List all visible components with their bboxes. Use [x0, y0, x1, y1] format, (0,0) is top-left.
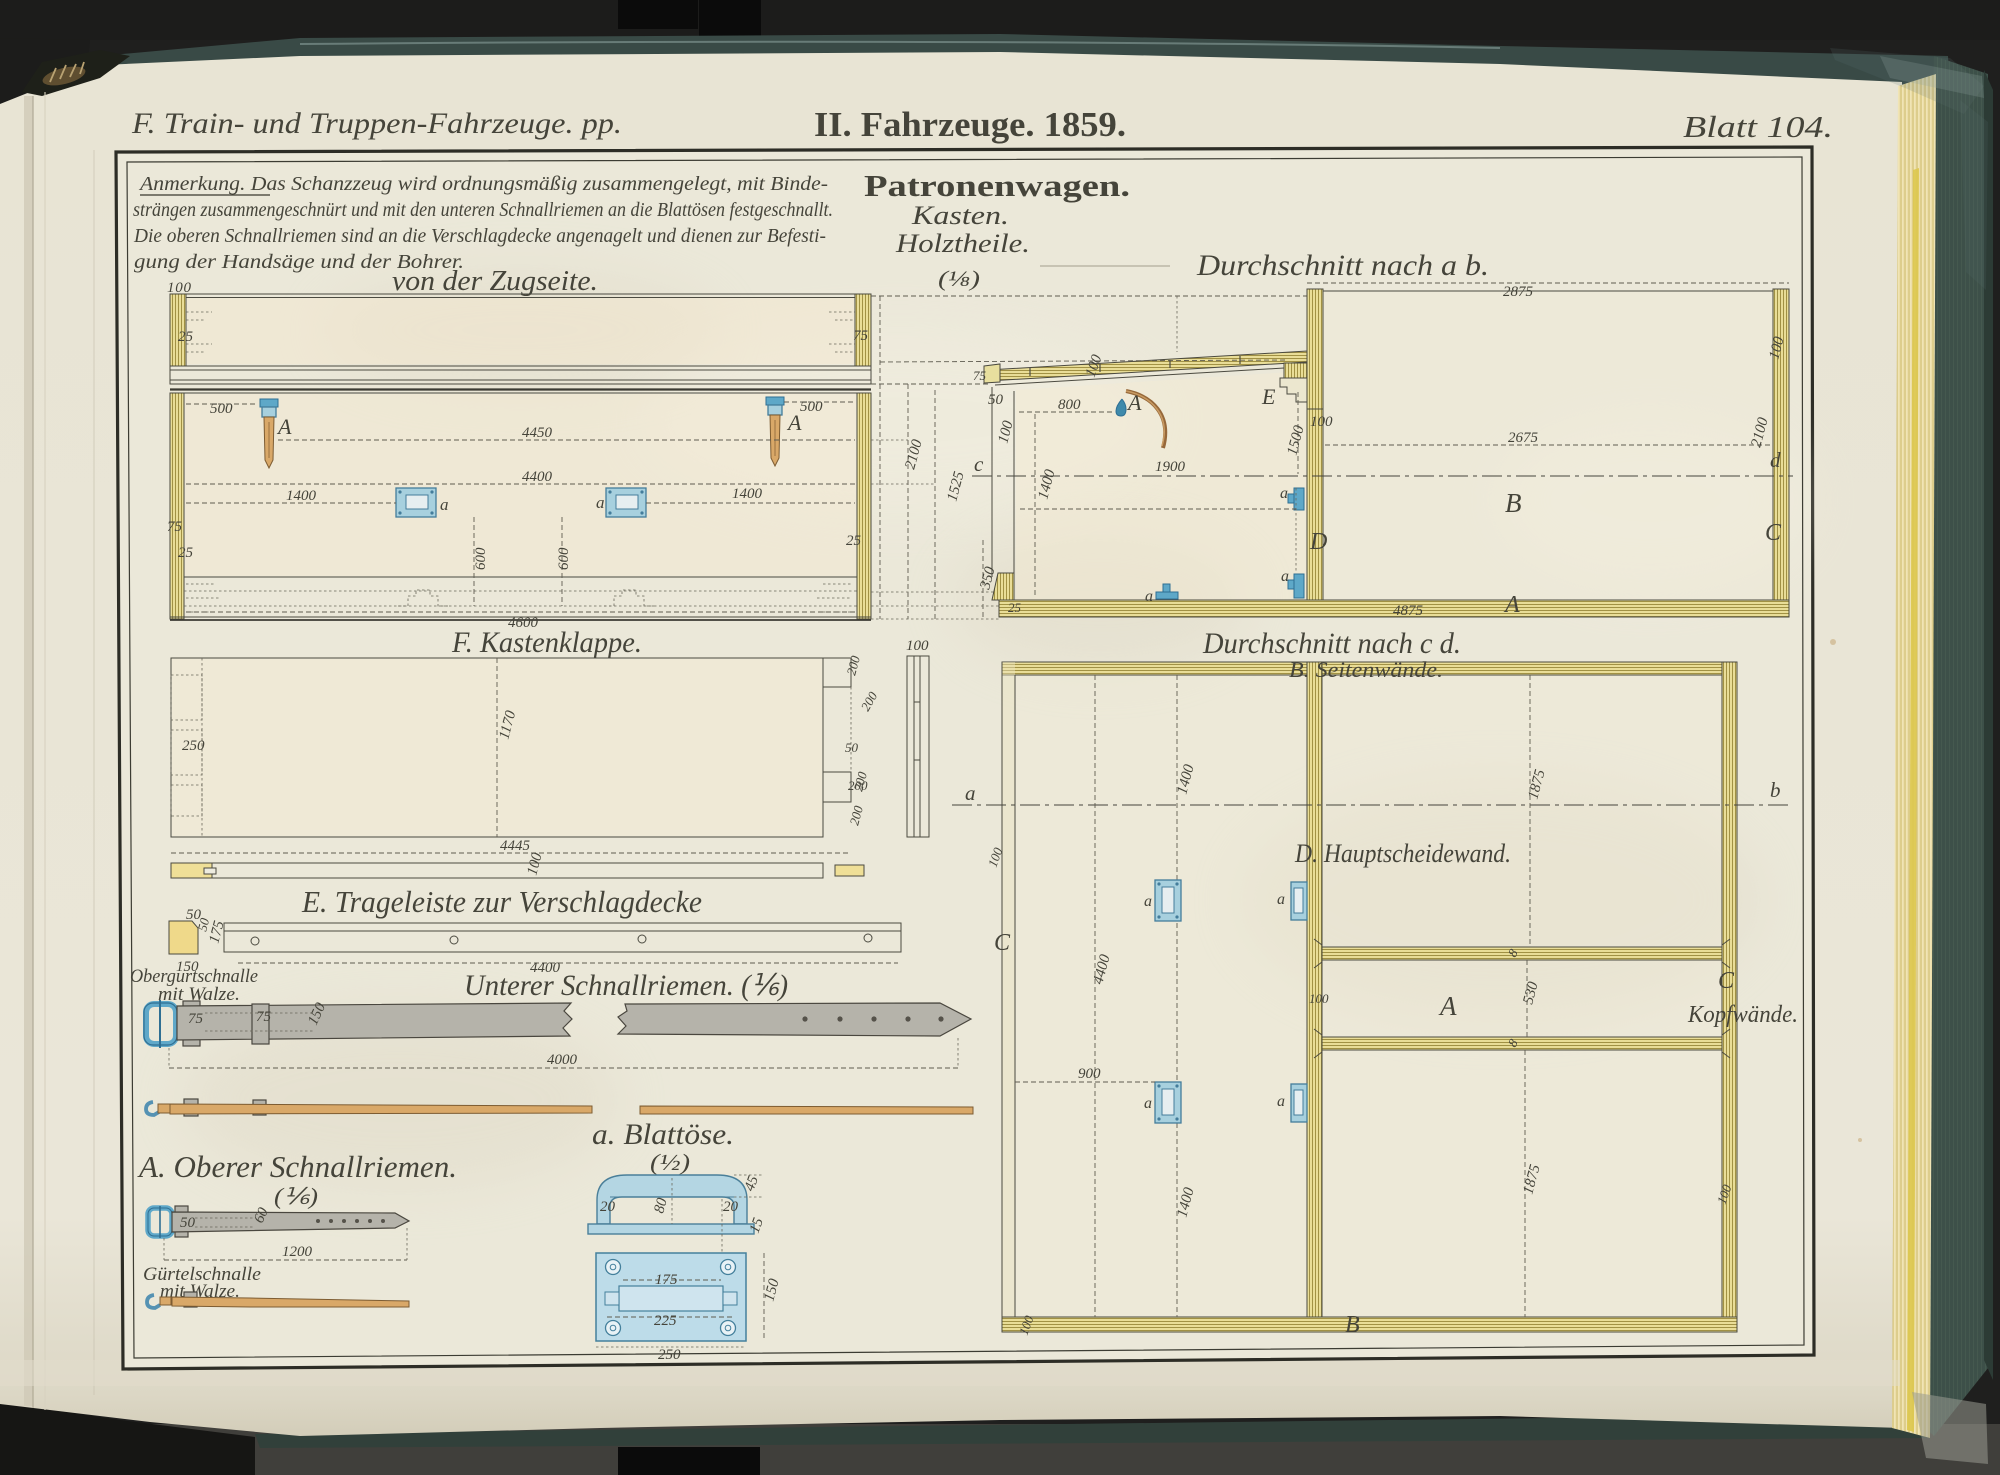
svg-text:20: 20 — [723, 1199, 739, 1215]
svg-text:E: E — [1261, 384, 1276, 409]
svg-text:F. Train- und Truppen-Fahrzeug: F. Train- und Truppen-Fahrzeuge. pp. — [131, 107, 622, 140]
svg-text:a: a — [1144, 893, 1152, 910]
svg-text:a: a — [1144, 1095, 1152, 1112]
svg-text:a: a — [1277, 1093, 1285, 1110]
svg-text:d: d — [1770, 448, 1781, 472]
svg-text:(½): (½) — [650, 1150, 690, 1175]
svg-text:500: 500 — [210, 401, 233, 417]
svg-text:75: 75 — [973, 368, 987, 383]
svg-text:900: 900 — [1078, 1066, 1101, 1082]
svg-text:1400: 1400 — [286, 488, 317, 504]
svg-text:Unterer Schnallriemen. (⅙): Unterer Schnallriemen. (⅙) — [464, 969, 788, 1002]
svg-text:600: 600 — [556, 547, 572, 570]
svg-text:20: 20 — [600, 1199, 616, 1215]
svg-text:1400: 1400 — [732, 486, 763, 502]
svg-text:4450: 4450 — [522, 425, 553, 441]
svg-text:25: 25 — [846, 533, 862, 549]
svg-text:50: 50 — [988, 392, 1004, 408]
svg-text:50: 50 — [845, 740, 859, 755]
svg-text:a. Blattöse.: a. Blattöse. — [592, 1118, 734, 1151]
svg-text:Durchschnitt nach c d.: Durchschnitt nach c d. — [1202, 627, 1461, 660]
svg-text:B. Seitenwände.: B. Seitenwände. — [1289, 657, 1443, 682]
svg-text:Patronenwagen.: Patronenwagen. — [864, 168, 1130, 203]
svg-text:D. Hauptscheidewand.: D. Hauptscheidewand. — [1294, 839, 1511, 868]
svg-text:50: 50 — [180, 1215, 196, 1231]
svg-text:25: 25 — [178, 545, 194, 561]
svg-text:100: 100 — [167, 280, 192, 296]
svg-text:225: 225 — [654, 1313, 677, 1329]
svg-text:a: a — [596, 493, 605, 512]
svg-text:C: C — [1718, 968, 1735, 994]
svg-text:800: 800 — [1058, 397, 1081, 413]
svg-text:Blatt 104.: Blatt 104. — [1683, 109, 1833, 144]
svg-text:Durchschnitt nach a b.: Durchschnitt nach a b. — [1196, 249, 1489, 282]
svg-text:b: b — [1770, 778, 1781, 802]
svg-text:a: a — [965, 781, 976, 805]
svg-text:strängen zusammengeschnürt und: strängen zusammengeschnürt und mit den u… — [133, 199, 833, 221]
svg-text:Kopfwände.: Kopfwände. — [1687, 1002, 1798, 1028]
svg-text:Kasten.: Kasten. — [911, 201, 1009, 230]
svg-text:(⅛): (⅛) — [938, 266, 980, 291]
svg-text:D: D — [1309, 529, 1327, 555]
svg-text:A. Oberer Schnallriemen.: A. Oberer Schnallriemen. — [137, 1149, 457, 1184]
svg-text:a: a — [1280, 485, 1288, 502]
svg-text:600: 600 — [473, 547, 489, 570]
svg-text:4445: 4445 — [500, 838, 531, 854]
svg-text:a: a — [1277, 891, 1285, 908]
svg-text:A: A — [276, 414, 292, 439]
svg-text:a: a — [1281, 568, 1289, 585]
svg-text:C: C — [994, 930, 1011, 956]
svg-text:Holztheile.: Holztheile. — [895, 229, 1030, 258]
svg-text:A: A — [1126, 390, 1142, 415]
svg-text:II. Fahrzeuge. 1859.: II. Fahrzeuge. 1859. — [814, 105, 1126, 144]
svg-text:100: 100 — [1310, 414, 1333, 430]
svg-text:(⅙): (⅙) — [274, 1184, 318, 1209]
svg-text:25: 25 — [178, 329, 194, 345]
svg-text:75: 75 — [256, 1009, 272, 1025]
svg-text:75: 75 — [188, 1011, 204, 1027]
svg-text:25: 25 — [1008, 600, 1022, 615]
svg-text:1200: 1200 — [282, 1244, 313, 1260]
svg-text:Anmerkung. Das Schanzzeug wird: Anmerkung. Das Schanzzeug wird ordnungsm… — [138, 173, 828, 195]
svg-text:E. Trageleiste zur Verschlagde: E. Trageleiste zur Verschlagdecke — [301, 884, 702, 919]
svg-text:F. Kastenklappe.: F. Kastenklappe. — [451, 626, 642, 659]
svg-text:250: 250 — [182, 738, 205, 754]
svg-text:A: A — [1503, 592, 1520, 618]
svg-text:2875: 2875 — [1503, 284, 1534, 300]
svg-text:4000: 4000 — [547, 1052, 578, 1068]
svg-text:A: A — [786, 410, 802, 435]
svg-text:von der Zugseite.: von der Zugseite. — [392, 266, 598, 297]
svg-text:C: C — [1765, 520, 1782, 546]
svg-text:B: B — [1345, 1312, 1360, 1338]
svg-text:4400: 4400 — [522, 469, 553, 485]
svg-text:75: 75 — [853, 328, 869, 344]
svg-text:2675: 2675 — [1508, 430, 1539, 446]
svg-text:250: 250 — [658, 1347, 681, 1363]
svg-text:500: 500 — [800, 399, 823, 415]
svg-text:1900: 1900 — [1155, 459, 1186, 475]
svg-text:B: B — [1505, 488, 1522, 518]
svg-text:a: a — [1145, 588, 1153, 605]
svg-text:75: 75 — [167, 519, 183, 535]
svg-text:175: 175 — [655, 1272, 678, 1288]
svg-text:A: A — [1438, 991, 1457, 1021]
svg-text:a: a — [440, 495, 449, 514]
svg-text:c: c — [974, 452, 984, 476]
svg-text:100: 100 — [906, 638, 929, 654]
svg-text:100: 100 — [1309, 991, 1329, 1006]
svg-text:4875: 4875 — [1393, 603, 1424, 619]
svg-text:Die oberen Schnallriemen sind: Die oberen Schnallriemen sind an die Ver… — [133, 225, 826, 247]
